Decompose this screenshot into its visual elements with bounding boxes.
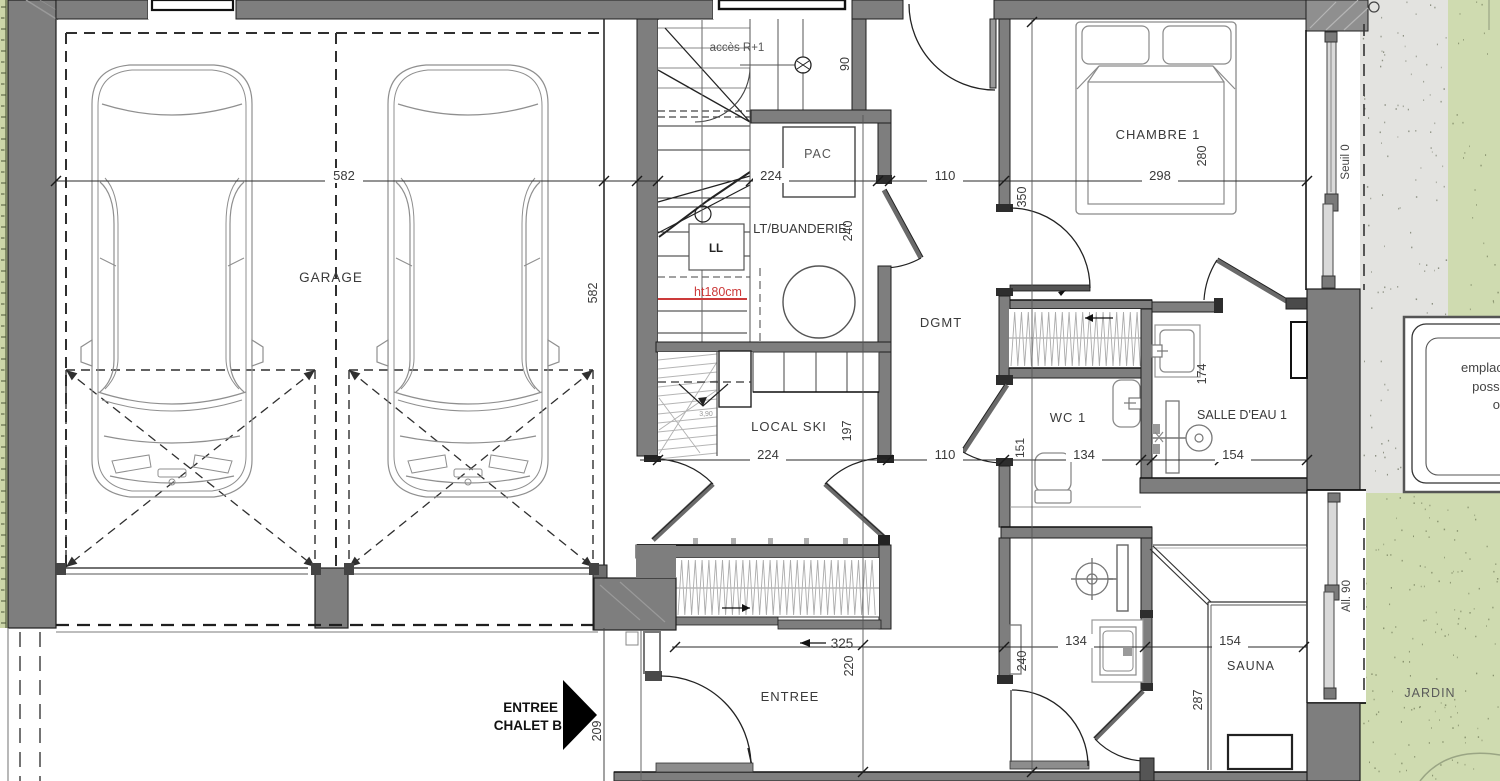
- svg-text:110: 110: [935, 447, 956, 462]
- svg-text:LT/BUANDERIE: LT/BUANDERIE: [753, 221, 847, 236]
- svg-text:CHAMBRE 1: CHAMBRE 1: [1116, 127, 1201, 142]
- svg-text:582: 582: [586, 283, 600, 304]
- svg-text:224: 224: [757, 447, 779, 462]
- svg-text:110: 110: [935, 168, 956, 183]
- svg-text:LL: LL: [709, 243, 723, 255]
- svg-text:134: 134: [1073, 447, 1095, 462]
- svg-text:582: 582: [333, 168, 355, 183]
- svg-text:WC 1: WC 1: [1050, 410, 1087, 425]
- svg-text:LOCAL SKI: LOCAL SKI: [751, 419, 827, 434]
- svg-text:298: 298: [1149, 168, 1171, 183]
- svg-text:ou: ou: [1493, 397, 1500, 412]
- svg-text:emplacement: emplacement: [1461, 360, 1500, 375]
- svg-text:197: 197: [840, 421, 854, 442]
- svg-text:220: 220: [842, 656, 856, 677]
- svg-text:SALLE D'EAU 1: SALLE D'EAU 1: [1197, 408, 1287, 422]
- svg-text:ENTREE: ENTREE: [503, 700, 558, 715]
- svg-text:Seuil 0: Seuil 0: [1340, 144, 1352, 179]
- svg-text:154: 154: [1219, 633, 1241, 648]
- svg-text:3,90: 3,90: [699, 411, 713, 418]
- svg-text:GARAGE: GARAGE: [299, 270, 363, 285]
- svg-text:287: 287: [1191, 690, 1205, 711]
- svg-text:JARDIN: JARDIN: [1404, 686, 1455, 700]
- svg-text:209: 209: [590, 721, 604, 742]
- svg-text:154: 154: [1222, 447, 1244, 462]
- svg-text:151: 151: [1013, 438, 1027, 458]
- svg-text:174: 174: [1195, 364, 1209, 385]
- svg-text:SAUNA: SAUNA: [1227, 659, 1275, 673]
- svg-text:DGMT: DGMT: [920, 315, 962, 330]
- svg-text:224: 224: [760, 168, 782, 183]
- svg-text:240: 240: [1015, 651, 1029, 672]
- svg-text:280: 280: [1195, 146, 1209, 167]
- svg-text:CHALET B: CHALET B: [494, 718, 562, 733]
- svg-text:325: 325: [831, 636, 854, 651]
- svg-text:PAC: PAC: [804, 147, 832, 161]
- svg-text:ht180cm: ht180cm: [694, 285, 742, 299]
- svg-text:All. 90: All. 90: [1341, 580, 1353, 612]
- svg-text:accès R+1: accès R+1: [710, 42, 765, 54]
- svg-text:350: 350: [1015, 187, 1029, 208]
- svg-text:90: 90: [838, 57, 852, 71]
- svg-text:134: 134: [1065, 633, 1087, 648]
- svg-text:possible: possible: [1472, 379, 1500, 394]
- svg-text:ENTREE: ENTREE: [761, 689, 820, 704]
- svg-text:240: 240: [841, 221, 855, 242]
